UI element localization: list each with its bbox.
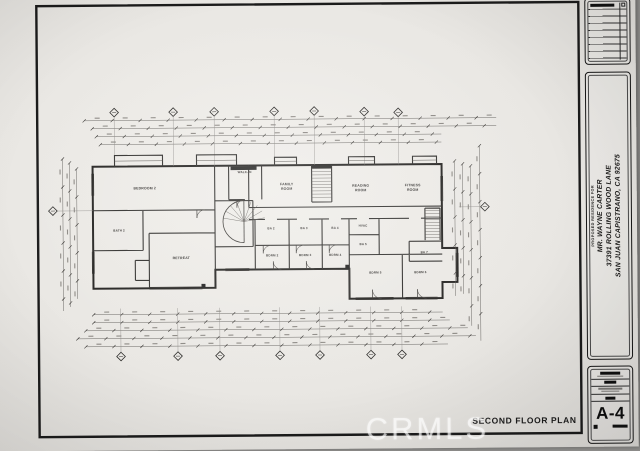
dimension-line: [94, 320, 450, 323]
dimension-text: [116, 335, 121, 336]
dimension-text: [419, 139, 424, 140]
sheet-footer-marks: [593, 425, 629, 429]
dimension-text: [74, 291, 75, 296]
dimension-text: [355, 124, 360, 125]
dimension-text: [411, 123, 416, 124]
room-label-ba-3: BA 3: [300, 226, 308, 230]
dimension-text: [451, 171, 452, 176]
revision-header-bar: [590, 3, 614, 7]
dimension-text: [303, 132, 308, 133]
dimension-text: [60, 282, 61, 287]
dimension-text: [452, 283, 453, 288]
dimension-text: [135, 133, 140, 134]
dimension-line: [77, 169, 78, 299]
corner-mark: [594, 425, 598, 429]
dimension-text: [96, 328, 101, 329]
dimension-text: [104, 312, 109, 313]
project-info-box: PROPOSED RESIDENCE FOR MR. WAYNE CARTER …: [585, 72, 633, 360]
dimension-text: [320, 326, 325, 327]
spiral-stair-tread: [244, 202, 251, 222]
dimension-text: [271, 124, 276, 125]
dimension-text: [132, 311, 137, 312]
sheet-info-text: [602, 391, 619, 392]
dimension-text: [460, 258, 461, 263]
dimension-text: [236, 326, 241, 327]
room-label-walk-in: WALK-IN: [238, 170, 252, 174]
dimension-text: [107, 134, 112, 135]
plan-sheet: BEDROOM 2 WALK-IN BATH 2 RETREAT FAMILY …: [0, 0, 639, 451]
dimension-text: [328, 310, 333, 311]
dimension-text: [216, 319, 221, 320]
dimension-text: [375, 115, 380, 116]
dimension-text: [376, 325, 381, 326]
dimension-text: [216, 311, 221, 312]
dimension-text: [74, 179, 75, 184]
dimension-text: [347, 116, 352, 117]
dimension-text: [384, 309, 389, 310]
room-label-bath-2: BATH 2: [113, 229, 125, 233]
dimension-text: [67, 285, 68, 290]
dimension-text: [111, 141, 116, 142]
dimension-line: [94, 312, 443, 315]
title-block: PROPOSED RESIDENCE FOR MR. WAYNE CARTER …: [584, 0, 635, 447]
dimension-text: [440, 317, 445, 318]
dimension-text: [387, 131, 392, 132]
dimension-text: [208, 343, 213, 344]
dimension-text: [152, 327, 157, 328]
sheet-info-bar: [600, 371, 621, 374]
corner-post: [201, 284, 205, 288]
dimension-text: [74, 207, 75, 212]
dimension-text: [59, 170, 60, 175]
dimension-text: [383, 123, 388, 124]
room-label-fitness-room-2: ROOM: [407, 188, 419, 192]
dimension-text: [67, 229, 68, 234]
room-label-bdrm-2: BDRM 2: [266, 253, 279, 257]
dimension-text: [452, 255, 453, 260]
dimension-text: [215, 125, 220, 126]
dimension-text: [247, 132, 252, 133]
dimension-text: [412, 317, 417, 318]
dimension-text: [404, 341, 409, 342]
dimension-text: [67, 173, 68, 178]
dimension-text: [284, 334, 289, 335]
dimension-text: [477, 268, 478, 273]
room-label-hvac: HVAC: [359, 224, 369, 228]
dimension-text: [96, 344, 101, 345]
stair-header-bar: [312, 165, 332, 168]
dimension-text: [207, 117, 212, 118]
dimension-text: [432, 325, 437, 326]
dimension-text: [468, 176, 469, 181]
dimension-text: [460, 230, 461, 235]
dimension-text: [328, 318, 333, 319]
divider: [591, 401, 629, 402]
dimension-text: [275, 132, 280, 133]
room-label-fitness-room: FITNESS: [405, 183, 421, 187]
door-swing-arc: [296, 245, 304, 253]
dimension-text: [88, 336, 93, 337]
dimension-text: [467, 123, 472, 124]
dimension-text: [104, 320, 109, 321]
dimension-text: [460, 202, 461, 207]
room-label-reading-room-2: ROOM: [355, 188, 367, 192]
room-label-bdrm-5: BDRM 5: [369, 270, 382, 274]
dimension-text: [452, 227, 453, 232]
dimension-text: [160, 319, 165, 320]
dimension-text: [415, 131, 420, 132]
dimension-text: [300, 318, 305, 319]
dimension-line: [479, 146, 481, 341]
dimension-line: [78, 336, 476, 339]
dimension-line: [463, 164, 464, 294]
dimension-text: [348, 326, 353, 327]
dimension-line: [84, 118, 496, 121]
dimension-text: [376, 341, 381, 342]
spiral-stair-tread: [230, 205, 244, 221]
room-label-family-room-2: ROOM: [281, 187, 293, 191]
dimension-text: [131, 125, 136, 126]
sheet-number-box: A-4: [587, 366, 634, 444]
door-swing-arc: [306, 261, 314, 269]
dimension-text: [124, 343, 129, 344]
door-swing-arc: [197, 210, 205, 218]
dimension-text: [200, 335, 205, 336]
dimension-text: [152, 343, 157, 344]
sheet-info-bar: [606, 396, 616, 399]
dimension-text: [151, 117, 156, 118]
room-label-ba-4: BA 4: [331, 226, 339, 230]
dimension-text: [163, 133, 168, 134]
dimension-text: [460, 286, 461, 291]
dimension-text: [469, 316, 470, 321]
sheet-info-rows: A-4: [592, 370, 628, 429]
dimension-text: [139, 141, 144, 142]
room-label-reading-room: READING: [352, 184, 369, 188]
dimension-text: [468, 288, 469, 293]
dimension-text: [67, 257, 68, 262]
dimension-text: [167, 141, 172, 142]
divider: [591, 385, 629, 386]
dimension-text: [335, 140, 340, 141]
dimension-text: [460, 174, 461, 179]
dimension-text: [452, 333, 457, 334]
dimension-text: [299, 124, 304, 125]
dimension-text: [319, 116, 324, 117]
dimension-text: [60, 198, 61, 203]
dimension-line: [100, 142, 441, 145]
sheet-info-bar: [604, 381, 616, 384]
dimension-text: [477, 212, 478, 217]
dimension-text: [103, 126, 108, 127]
dimension-text: [124, 327, 129, 328]
dimension-text: [477, 296, 478, 301]
room-label-bdrm-3: BDRM 3: [299, 253, 312, 257]
dimension-text: [396, 333, 401, 334]
dimension-text: [236, 342, 241, 343]
dimension-text: [132, 319, 137, 320]
dimension-text: [391, 139, 396, 140]
room-label-family-room: FAMILY: [280, 182, 294, 186]
dimension-text: [487, 115, 492, 116]
dimension-text: [208, 327, 213, 328]
building-interior-walls: [93, 164, 443, 301]
dimension-text: [331, 132, 336, 133]
dimension-text: [272, 310, 277, 311]
dimension-line: [62, 159, 63, 311]
dimension-text: [460, 325, 465, 326]
room-label-bedroom-2: BEDROOM 2: [133, 186, 156, 190]
dimension-text: [228, 335, 233, 336]
spiral-stair-tread: [237, 202, 244, 222]
dimension-text: [327, 124, 332, 125]
crmls-watermark: CRMLS: [365, 411, 489, 448]
dimension-text: [478, 324, 479, 329]
dimension-text: [340, 334, 345, 335]
dimension-text: [60, 254, 61, 259]
dimension-text: [424, 333, 429, 334]
dimension-text: [384, 317, 389, 318]
dimension-text: [191, 133, 196, 134]
dimension-text: [477, 184, 478, 189]
dimension-text: [180, 327, 185, 328]
dimension-text: [477, 240, 478, 245]
dimension-text: [264, 342, 269, 343]
dimension-text: [359, 132, 364, 133]
room-label-ba-2: BA 2: [267, 226, 275, 230]
revision-header-cell: [621, 3, 626, 7]
dimension-text: [256, 334, 261, 335]
photo-background: BEDROOM 2 WALK-IN BATH 2 RETREAT FAMILY …: [0, 0, 640, 451]
floor-plan-drawing: BEDROOM 2 WALK-IN BATH 2 RETREAT FAMILY …: [0, 0, 639, 451]
dimension-text: [159, 125, 164, 126]
room-label-ba-7: BA 7: [421, 250, 429, 254]
dimension-text: [67, 201, 68, 206]
dimension-line: [92, 126, 496, 129]
dimension-text: [412, 309, 417, 310]
dimension-text: [432, 341, 437, 342]
dimension-text: [160, 311, 165, 312]
dimension-text: [188, 319, 193, 320]
dimension-text: [279, 140, 284, 141]
sheet-info-text: [597, 375, 623, 377]
dimension-text: [251, 140, 256, 141]
dimensions-and-marks: [48, 105, 498, 361]
dimension-line: [471, 166, 472, 326]
room-label-ba-5: BA 5: [359, 242, 367, 246]
divider: [591, 394, 629, 395]
dimension-text: [468, 260, 469, 265]
room-label-bdrm-4: BDRM 4: [329, 253, 342, 257]
dimension-text: [348, 342, 353, 343]
dimension-text: [320, 342, 325, 343]
dimension-text: [74, 235, 75, 240]
dimension-text: [272, 318, 277, 319]
room-labels: BEDROOM 2 WALK-IN BATH 2 RETREAT FAMILY …: [113, 169, 428, 277]
door-swing-arc: [273, 261, 281, 269]
dimension-text: [292, 342, 297, 343]
revision-rows: [588, 9, 626, 61]
dimension-text: [431, 115, 436, 116]
dimension-text: [180, 343, 185, 344]
door-swing-arc: [329, 245, 337, 253]
dimension-text: [172, 335, 177, 336]
prepared-for-label: PROPOSED RESIDENCE FOR: [590, 128, 595, 304]
dimension-text: [439, 123, 444, 124]
dimension-text: [263, 116, 268, 117]
footer-bar: [613, 425, 628, 428]
spiral-stair: [223, 201, 244, 243]
room-label-bdrm-6: BDRM 6: [414, 270, 427, 274]
room-label-retreat: RETREAT: [173, 256, 191, 260]
dimension-text: [188, 311, 193, 312]
dimension-text: [264, 326, 269, 327]
dimension-text: [291, 116, 296, 117]
dimension-line: [96, 134, 441, 137]
dimension-text: [403, 115, 408, 116]
revision-table: [584, 0, 631, 65]
dimension-text: [95, 118, 100, 119]
dimension-text: [244, 318, 249, 319]
dimension-text: [300, 310, 305, 311]
dimension-text: [452, 199, 453, 204]
dimension-text: [74, 263, 75, 268]
divider: [591, 378, 629, 379]
project-info-text: PROPOSED RESIDENCE FOR MR. WAYNE CARTER …: [590, 128, 627, 304]
dimension-text: [235, 117, 240, 118]
sheet-info-text: [599, 388, 622, 389]
dimension-text: [244, 310, 249, 311]
dimension-text: [60, 226, 61, 231]
dimension-text: [307, 140, 312, 141]
dimension-text: [476, 156, 477, 161]
door-swing-arc: [263, 245, 271, 253]
dimension-text: [363, 139, 368, 140]
address-line2: SAN JUAN CAPISTRANO, CA 92675: [614, 128, 624, 304]
dimension-text: [356, 310, 361, 311]
dimension-text: [219, 133, 224, 134]
dimension-line: [455, 161, 456, 296]
dimension-text: [459, 115, 464, 116]
dimension-text: [179, 117, 184, 118]
dimension-text: [187, 125, 192, 126]
dimension-text: [312, 334, 317, 335]
dimension-text: [356, 318, 361, 319]
dimension-text: [404, 325, 409, 326]
dimension-text: [195, 141, 200, 142]
dimension-text: [468, 232, 469, 237]
dimension-line: [70, 163, 71, 307]
sheet-number: A-4: [592, 403, 628, 423]
dimension-text: [243, 124, 248, 125]
dimension-text: [123, 117, 128, 118]
dimension-text: [144, 335, 149, 336]
dimension-text: [223, 141, 228, 142]
dimension-text: [292, 326, 297, 327]
corner-post: [345, 265, 349, 269]
